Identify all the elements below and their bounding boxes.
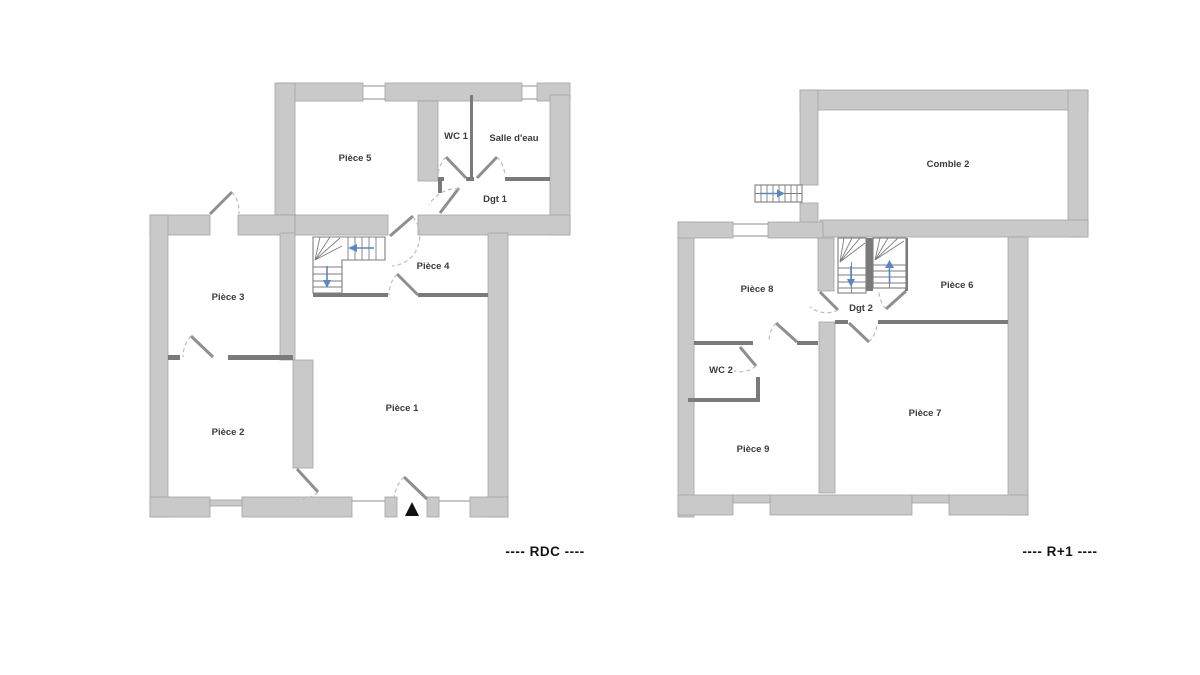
window-sill (733, 495, 770, 503)
thin-wall (505, 177, 550, 181)
thin-wall (688, 398, 760, 402)
wall (280, 233, 295, 360)
wall (820, 220, 1088, 237)
door-piece5 (390, 216, 420, 266)
window-sill (210, 500, 242, 506)
rdc-window-top-2 (522, 86, 537, 99)
door-entrance (394, 477, 427, 516)
wall (1068, 90, 1088, 237)
room-label-piece1: Pièce 1 (386, 403, 419, 414)
room-label-dgt1: Dgt 1 (483, 194, 507, 205)
wall (800, 90, 818, 185)
room-label-comble2: Comble 2 (927, 159, 970, 170)
door-dgt1 (429, 188, 459, 213)
thin-wall (438, 177, 444, 181)
rdc-upper-block-walls (275, 83, 570, 235)
room-label-piece2: Pièce 2 (212, 427, 245, 438)
wall (768, 222, 823, 238)
wall (678, 222, 733, 238)
r1-room-labels: Comble 2 Pièce 8 Dgt 2 Pièce 6 WC 2 Pièc… (709, 159, 973, 455)
door-dgt2-piece7 (849, 323, 877, 342)
thin-wall (418, 293, 488, 297)
room-label-wc2: WC 2 (709, 365, 733, 376)
floor-title-r1: ---- R+1 ---- (1022, 544, 1097, 559)
wall (1008, 237, 1028, 515)
wall (770, 495, 912, 515)
door-piece3-exterior (210, 192, 239, 214)
floor-plan-canvas: Pièce 5 WC 1 Salle d'eau Dgt 1 Pièce 4 P… (0, 0, 1200, 675)
wall (488, 233, 508, 517)
thin-wall (438, 181, 442, 193)
wall (427, 497, 439, 517)
rdc-doors (183, 157, 505, 516)
rdc-window-top-1 (363, 86, 385, 99)
wall (819, 322, 835, 493)
wall (293, 360, 313, 468)
window-sill (912, 495, 949, 503)
door-piece3-piece2 (183, 336, 213, 357)
door-wc1 (438, 157, 466, 178)
wall (275, 83, 295, 215)
door-dgt2-piece6 (879, 291, 906, 309)
rdc-staircase (313, 237, 385, 293)
room-label-piece6: Pièce 6 (941, 280, 974, 291)
wall (418, 215, 570, 235)
thin-wall (466, 177, 474, 181)
wall (385, 83, 522, 101)
r1-comble-ladder (755, 185, 802, 202)
door-piece8-nook (769, 323, 797, 342)
wall (678, 222, 694, 517)
room-label-salle-deau: Salle d'eau (489, 133, 538, 144)
thin-wall (866, 238, 873, 291)
thin-wall (797, 341, 818, 345)
thin-wall (694, 341, 753, 345)
room-label-piece5: Pièce 5 (339, 153, 372, 164)
wall (550, 95, 570, 235)
wall (385, 497, 397, 517)
wall (295, 215, 388, 235)
wall (800, 90, 1088, 110)
room-label-dgt2: Dgt 2 (849, 303, 873, 314)
wall (678, 495, 733, 515)
wall (470, 497, 508, 517)
entrance-marker-icon (405, 502, 419, 516)
thin-wall (835, 320, 848, 324)
room-label-piece8: Pièce 8 (741, 284, 774, 295)
door-piece8-dgt2 (810, 292, 838, 313)
thin-wall (313, 293, 388, 297)
thin-wall (168, 355, 180, 360)
wall (949, 495, 1028, 515)
wall (818, 238, 834, 291)
wall (238, 215, 295, 235)
thin-wall (228, 355, 293, 360)
thin-wall (470, 95, 473, 178)
room-label-wc1: WC 1 (444, 131, 468, 142)
room-label-piece4: Pièce 4 (417, 261, 450, 272)
door-piece2-piece1 (297, 469, 318, 500)
floor-plan-drawing: Pièce 5 WC 1 Salle d'eau Dgt 1 Pièce 4 P… (0, 0, 1200, 675)
door-salle-deau (477, 157, 505, 178)
room-label-piece9: Pièce 9 (737, 444, 770, 455)
rdc-floor-plan: Pièce 5 WC 1 Salle d'eau Dgt 1 Pièce 4 P… (150, 83, 585, 559)
wall (418, 101, 438, 181)
room-label-piece7: Pièce 7 (909, 408, 942, 419)
door-wc2 (734, 347, 756, 372)
door-piece4-piece1 (389, 274, 418, 295)
wall (150, 497, 210, 517)
wall (150, 215, 168, 517)
r1-floor-plan: Comble 2 Pièce 8 Dgt 2 Pièce 6 WC 2 Pièc… (678, 90, 1098, 559)
room-label-piece3: Pièce 3 (212, 292, 245, 303)
thin-wall (878, 320, 1008, 324)
floor-title-rdc: ---- RDC ---- (505, 544, 584, 559)
